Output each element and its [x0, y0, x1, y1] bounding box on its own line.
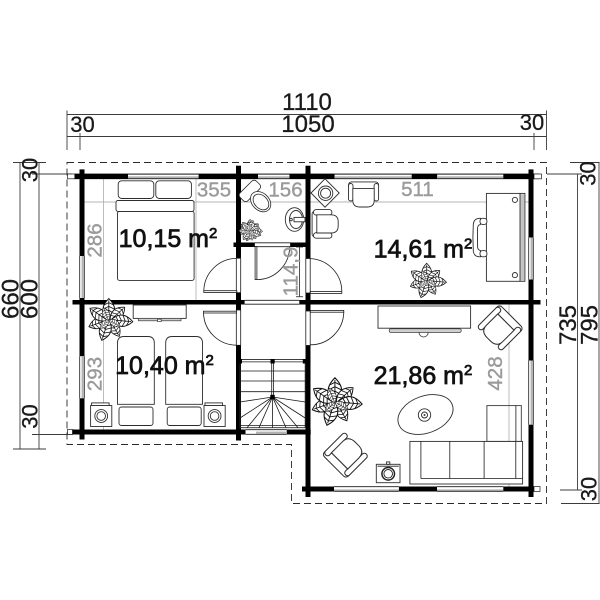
svg-text:795: 795	[577, 305, 600, 345]
svg-text:30: 30	[577, 477, 600, 501]
svg-text:600: 600	[17, 279, 44, 319]
svg-text:286: 286	[84, 223, 107, 257]
svg-text:355: 355	[197, 179, 231, 202]
svg-text:428: 428	[484, 356, 507, 390]
svg-text:1050: 1050	[281, 111, 334, 138]
svg-text:10,15 m2: 10,15 m2	[119, 225, 218, 253]
svg-text:30: 30	[18, 158, 43, 182]
svg-text:511: 511	[401, 178, 434, 201]
svg-text:30: 30	[70, 112, 94, 137]
svg-text:30: 30	[18, 404, 43, 428]
svg-text:156: 156	[268, 179, 302, 202]
svg-text:14,61 m2: 14,61 m2	[374, 236, 473, 264]
svg-text:10,40 m2: 10,40 m2	[115, 352, 214, 380]
svg-text:30: 30	[576, 161, 600, 185]
svg-text:114,9: 114,9	[280, 247, 303, 297]
svg-text:21,86 m2: 21,86 m2	[374, 362, 473, 390]
svg-text:293: 293	[84, 357, 107, 391]
svg-text:30: 30	[520, 110, 544, 135]
